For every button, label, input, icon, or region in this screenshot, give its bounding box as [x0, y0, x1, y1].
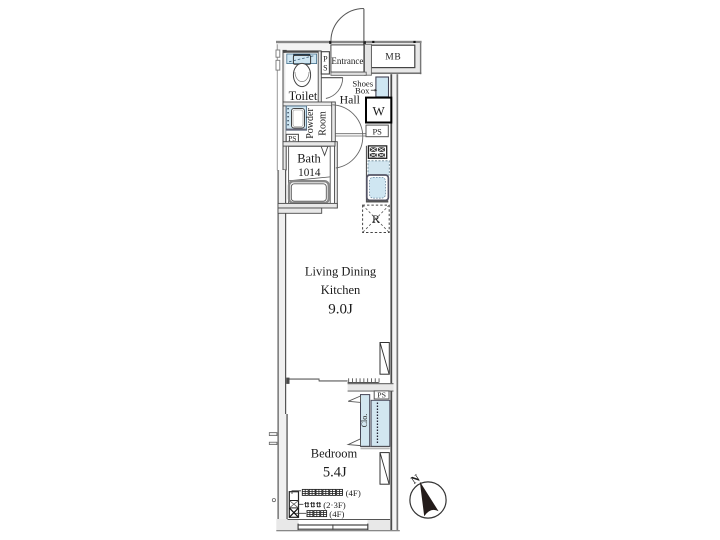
svg-text:R: R [372, 214, 380, 226]
svg-text:S: S [323, 64, 327, 73]
svg-text:5.4J: 5.4J [323, 464, 347, 480]
svg-text:Entrance: Entrance [331, 56, 363, 66]
svg-text:Toilet: Toilet [289, 89, 318, 103]
svg-text:PS: PS [377, 391, 386, 400]
svg-text:Clo.: Clo. [360, 414, 369, 428]
svg-text:Bedroom: Bedroom [311, 447, 358, 461]
svg-text:1014: 1014 [298, 167, 321, 179]
svg-text:MB: MB [385, 53, 401, 63]
svg-text:Bath: Bath [297, 152, 321, 166]
svg-text:Box: Box [355, 86, 370, 96]
svg-text:Room: Room [317, 111, 328, 136]
svg-text:9.0J: 9.0J [328, 302, 353, 318]
svg-text:(4F): (4F) [329, 509, 344, 519]
svg-text:PS: PS [372, 126, 382, 136]
svg-text:W: W [372, 103, 385, 118]
svg-text:Living Dining: Living Dining [305, 265, 377, 279]
svg-text:P: P [323, 55, 328, 64]
svg-text:Powder: Powder [305, 108, 316, 139]
svg-text:(4F): (4F) [346, 488, 361, 498]
svg-text:Kitchen: Kitchen [321, 283, 361, 297]
